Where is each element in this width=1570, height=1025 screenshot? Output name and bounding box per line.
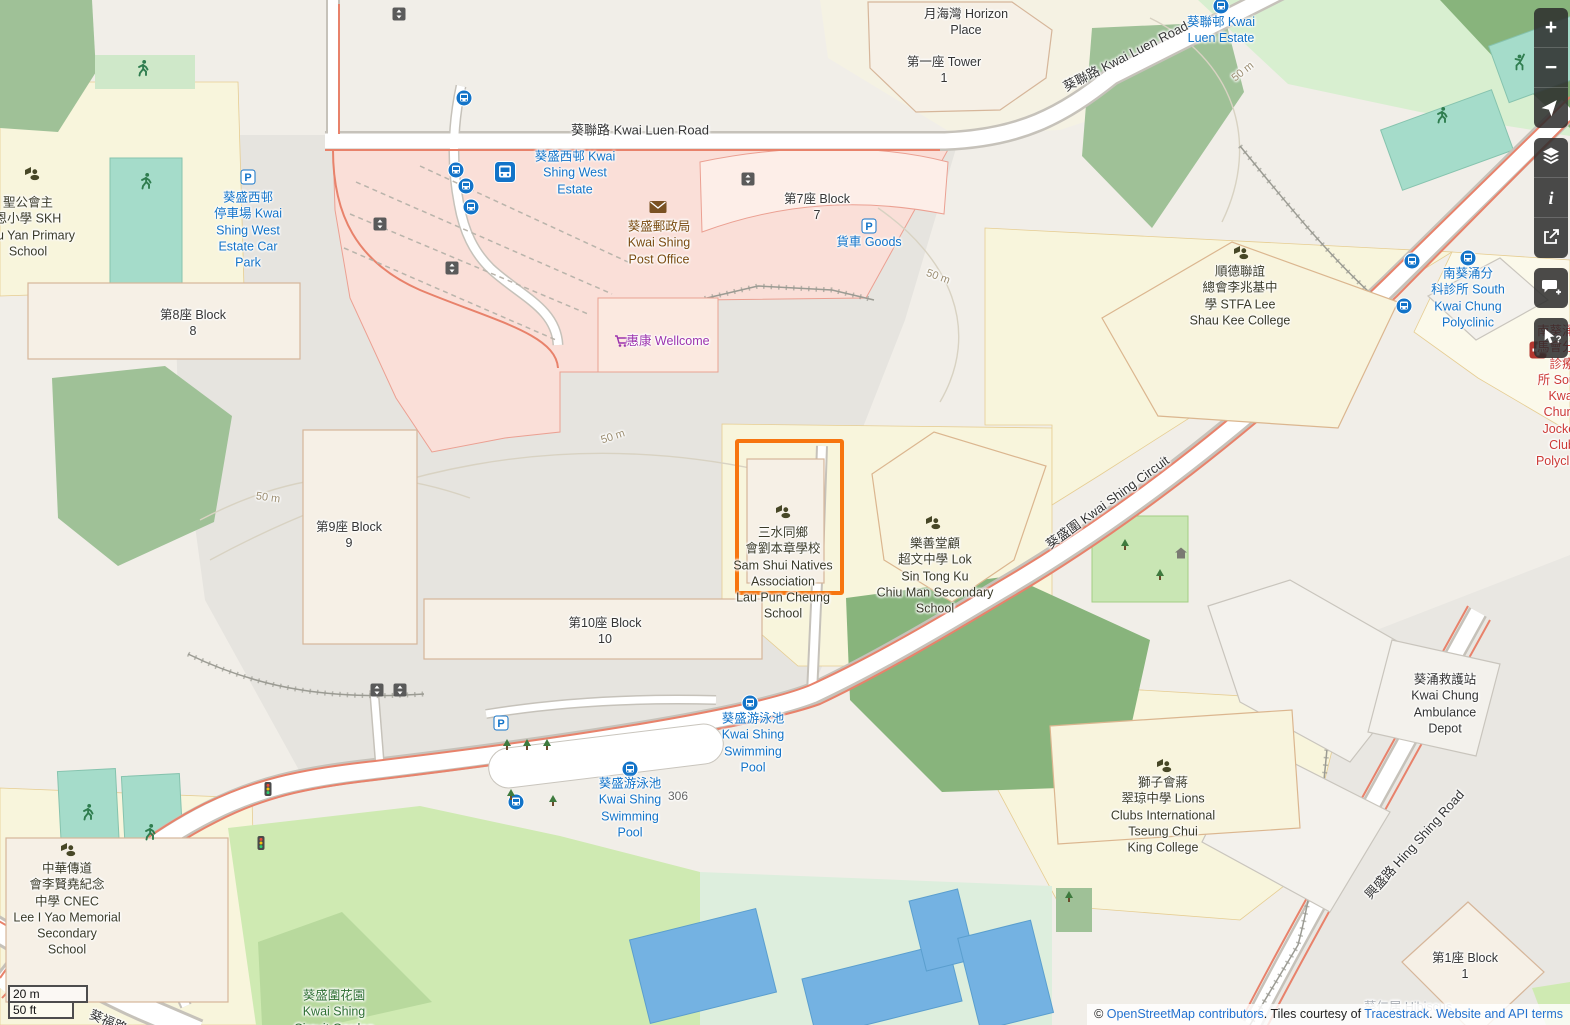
attribution-text-1: . Tiles courtesy of — [1264, 1007, 1365, 1021]
info-icon: i — [1548, 189, 1553, 207]
query-features-button[interactable]: ? — [1534, 318, 1568, 358]
tracestrack-link[interactable]: Tracestrack — [1364, 1007, 1429, 1021]
map-viewport: PPP 月海灣 Horizon Place第一座 Tower 1葵聯路 Kwai… — [0, 0, 1570, 1025]
scale-imperial-label: 50 ft — [13, 1003, 36, 1017]
control-group-2: i — [1534, 138, 1568, 258]
zoom-out-button[interactable]: − — [1534, 48, 1568, 88]
scale-metric-label: 20 m — [13, 987, 40, 1001]
scale-bar: 20 m 50 ft — [8, 985, 88, 1019]
plus-icon: + — [1545, 17, 1557, 38]
map-key-button[interactable]: i — [1534, 178, 1568, 218]
layers-button[interactable] — [1534, 138, 1568, 178]
control-group-4: ? — [1534, 318, 1568, 358]
attribution-bar: © OpenStreetMap contributors. Tiles cour… — [1087, 1004, 1570, 1025]
map-controls: +−i? — [1534, 8, 1568, 358]
control-group-3 — [1534, 268, 1568, 308]
copyright-symbol: © — [1094, 1007, 1107, 1021]
zoom-in-button[interactable]: + — [1534, 8, 1568, 48]
add-note-button[interactable] — [1534, 268, 1568, 308]
selected-feature-highlight — [735, 439, 844, 595]
scale-imperial: 50 ft — [8, 1001, 74, 1019]
query-arrow-icon: ? — [1541, 327, 1562, 350]
terms-link[interactable]: Website and API terms — [1436, 1007, 1563, 1021]
show-my-location-button[interactable] — [1534, 88, 1568, 128]
control-group-1: +− — [1534, 8, 1568, 128]
share-icon — [1542, 228, 1560, 249]
navigation-arrow-icon — [1541, 97, 1561, 120]
svg-text:?: ? — [1555, 334, 1561, 345]
minus-icon: − — [1545, 57, 1557, 78]
osm-contributors-link[interactable]: OpenStreetMap contributors — [1107, 1007, 1264, 1021]
layers-icon — [1541, 146, 1561, 169]
share-button[interactable] — [1534, 218, 1568, 258]
note-plus-icon — [1541, 277, 1562, 300]
